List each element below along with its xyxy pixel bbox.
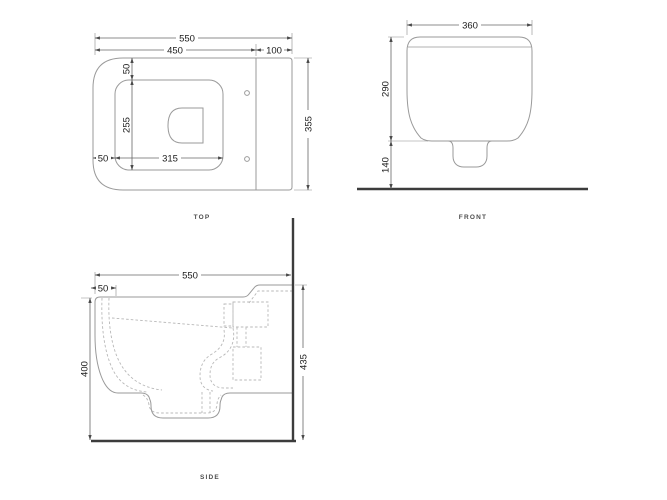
side-view-trap-inner-dashed (200, 330, 224, 391)
dim-text-side-400: 400 (80, 361, 91, 377)
dim-text-top-450: 450 (167, 46, 183, 57)
dim-text-top-100: 100 (266, 46, 282, 57)
mounting-hole-top (245, 91, 250, 96)
side-view-outlet-pipe-dashed (202, 392, 210, 413)
dim-text-front-290: 290 (381, 81, 392, 97)
top-view: 550 450 100 355 50 255 50 315 TOP (93, 33, 315, 222)
top-view-label: TOP (194, 214, 211, 221)
side-view: 550 50 400 435 SIDE (80, 218, 310, 481)
side-view-label: SIDE (200, 474, 220, 481)
side-view-rim-line-dashed (112, 318, 233, 328)
front-view-body-outline (407, 37, 532, 141)
front-view-extension-lines (388, 20, 532, 141)
side-view-outlet-rect-dashed (233, 347, 261, 380)
technical-drawing-page: 550 450 100 355 50 255 50 315 TOP 360 29… (0, 0, 667, 500)
side-view-trap-outer-dashed (210, 328, 234, 388)
side-view-inlet-rect-dashed (233, 302, 268, 327)
dim-text-front-140: 140 (381, 157, 392, 173)
dim-text-front-360: 360 (462, 21, 478, 32)
dim-text-top-355: 355 (304, 116, 315, 132)
side-view-top-step-dashed (249, 291, 292, 303)
dim-text-side-50: 50 (98, 284, 109, 295)
side-view-inlet-small-rect-dashed (224, 304, 233, 326)
toilet-technical-drawing: 550 450 100 355 50 255 50 315 TOP 360 29… (0, 0, 667, 500)
dim-text-side-435: 435 (299, 354, 310, 370)
front-view: 360 290 140 FRONT (357, 20, 588, 222)
dim-text-top-50v: 50 (122, 64, 133, 75)
dim-text-top-315: 315 (162, 154, 178, 165)
dim-text-side-550: 550 (182, 271, 198, 282)
dim-text-top-255: 255 (122, 117, 133, 133)
dim-text-top-50h: 50 (98, 154, 109, 165)
front-view-outlet (448, 141, 492, 167)
top-view-drain-outline (168, 108, 203, 143)
side-view-spigot-inner-dashed (143, 395, 221, 413)
dim-text-top-550: 550 (179, 34, 195, 45)
front-view-label: FRONT (459, 214, 487, 221)
mounting-hole-bottom (245, 157, 250, 162)
side-view-inlet-connector-dashed (237, 327, 246, 347)
side-view-shell-inner-dashed (102, 298, 147, 392)
side-view-body-outline (95, 285, 292, 418)
